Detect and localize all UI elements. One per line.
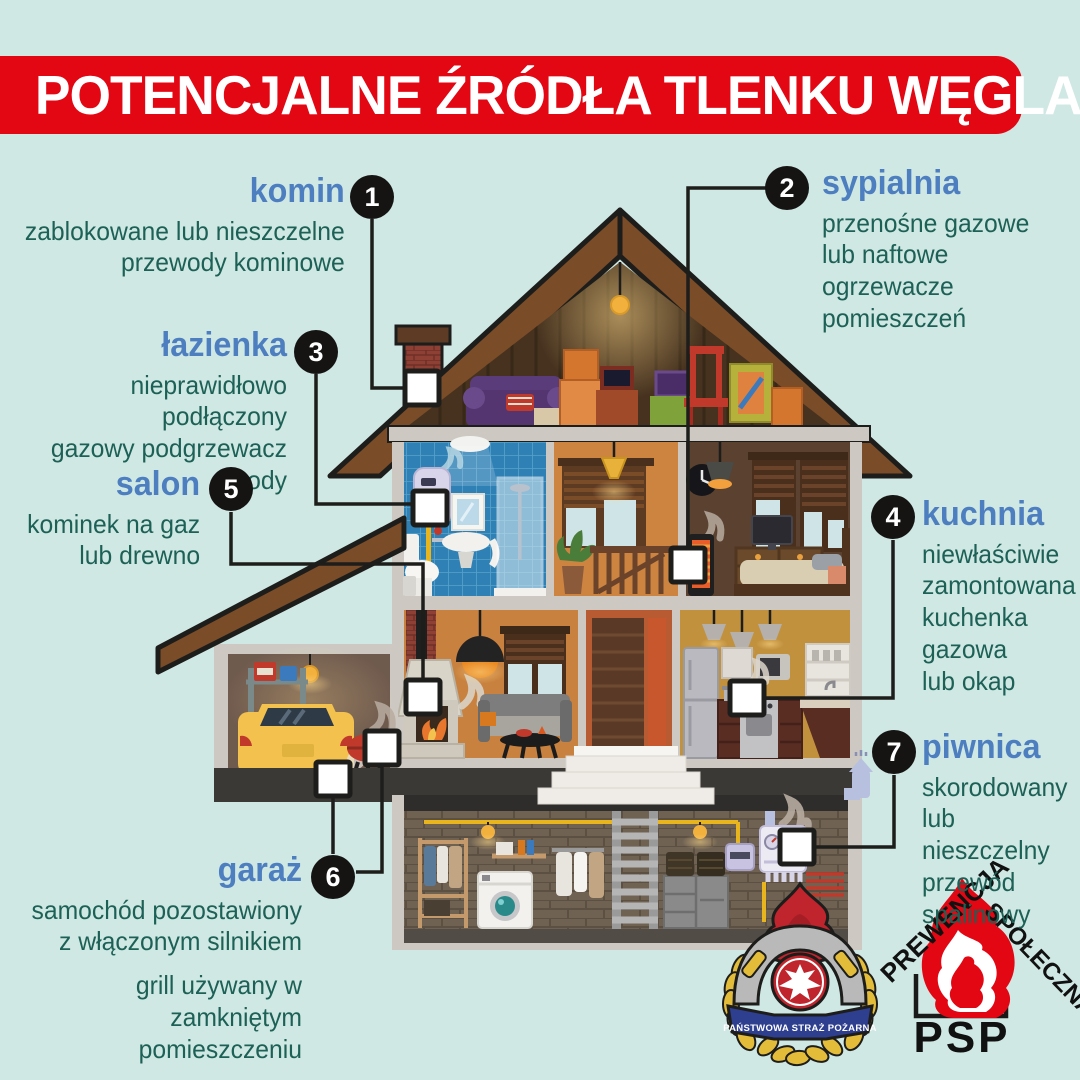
number-badge-7: 7 (872, 730, 916, 774)
room-desc-sypialnia: przenośne gazowe lub naftowe ogrzewacze … (822, 208, 1067, 335)
label-sypialnia: sypialnia przenośne gazowe lub naftowe o… (822, 166, 1067, 335)
attic-lightbulb (611, 296, 629, 314)
number-badge-4: 4 (871, 495, 915, 539)
label-salon: salon kominek na gaz lub drewno (27, 467, 200, 572)
room-name-piwnica: piwnica (922, 730, 1072, 766)
entry-hall (586, 610, 672, 758)
upstairs-hall-room (554, 442, 678, 596)
line-komin (372, 219, 405, 388)
marker-fireplace (406, 680, 440, 714)
room-desc-salon: kominek na gaz lub drewno (27, 509, 200, 572)
room-name-garaz: garaż (15, 853, 302, 889)
room-name-sypialnia: sypialnia (822, 166, 1067, 202)
bedroom (686, 442, 850, 596)
infographic-canvas: PAŃSTWOWA STRAŻ POŻARNA PREWENCJA SPOŁEC… (0, 0, 1080, 1080)
marker-water-heater (413, 491, 447, 525)
room-desc-komin: zablokowane lub nieszczelne przewody kom… (25, 216, 345, 279)
clothes-rack (420, 838, 466, 928)
attic (408, 230, 832, 426)
computer-monitor (752, 516, 792, 544)
marker-car-exhaust (316, 762, 350, 796)
number-badge-5: 5 (209, 467, 253, 511)
marker-grill (365, 731, 399, 765)
badge-ribbon-text: PAŃSTWOWA STRAŻ POŻARNA (723, 1023, 877, 1034)
title-banner: POTENCJALNE ŹRÓDŁA TLENKU WĘGLA (0, 56, 1022, 134)
label-garaz: garaż samochód pozostawiony z włączonym … (15, 853, 302, 1065)
room-name-komin: komin (25, 174, 345, 210)
number-badge-6: 6 (311, 855, 355, 899)
room-desc-piwnica: skorodowany lub nieszczelny przewód spal… (922, 772, 1072, 931)
room-name-salon: salon (27, 467, 200, 503)
label-piwnica: piwnica skorodowany lub nieszczelny prze… (922, 730, 1072, 930)
room-desc-garaz-car: samochód pozostawiony z włączonym silnik… (15, 895, 302, 958)
label-komin: komin zablokowane lub nieszczelne przewo… (25, 174, 345, 279)
room-name-kuchnia: kuchnia (922, 497, 1076, 533)
marker-chimney (405, 371, 439, 405)
room-desc-kuchnia: niewłaściwie zamontowana kuchenka gazowa… (922, 539, 1076, 698)
number-badge-3: 3 (294, 330, 338, 374)
page-title: POTENCJALNE ŹRÓDŁA TLENKU WĘGLA (0, 63, 1080, 127)
room-desc-garaz-grill: grill używany w zamkniętym pomieszczeniu (15, 970, 302, 1065)
prevention-abbr: PSP (913, 1013, 1010, 1062)
number-badge-1: 1 (350, 175, 394, 219)
label-kuchnia: kuchnia niewłaściwie zamontowana kuchenk… (922, 497, 1076, 697)
towel (492, 540, 496, 566)
number-badge-2: 2 (765, 166, 809, 210)
marker-boiler-flue (780, 830, 814, 864)
marker-stove (730, 681, 764, 715)
marker-heater (671, 548, 705, 582)
room-name-lazienka: łazienka (14, 328, 287, 364)
washing-machine (478, 872, 532, 928)
